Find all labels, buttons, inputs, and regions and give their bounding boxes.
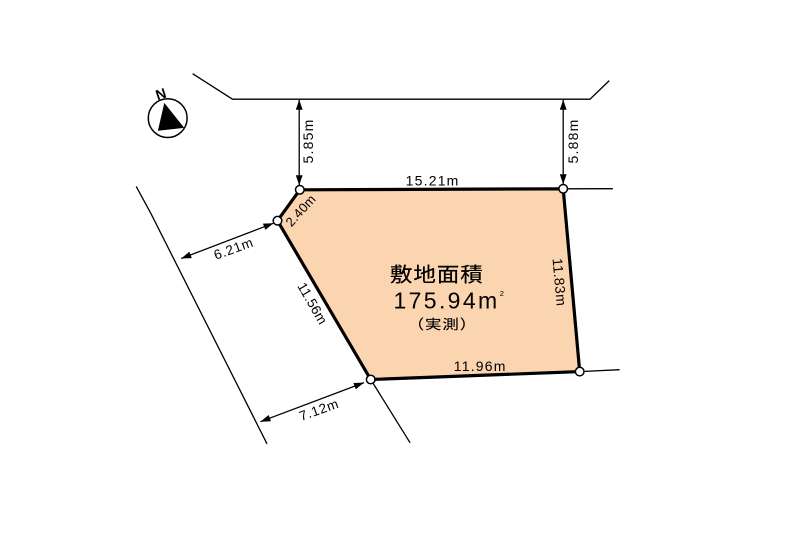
svg-text:2: 2 — [500, 289, 504, 298]
svg-text:11.96m: 11.96m — [454, 358, 507, 374]
svg-text:15.21m: 15.21m — [406, 173, 460, 189]
svg-text:5.85m: 5.85m — [300, 119, 316, 164]
svg-text:175.94m: 175.94m — [394, 288, 500, 314]
svg-text:5.88m: 5.88m — [565, 119, 581, 164]
